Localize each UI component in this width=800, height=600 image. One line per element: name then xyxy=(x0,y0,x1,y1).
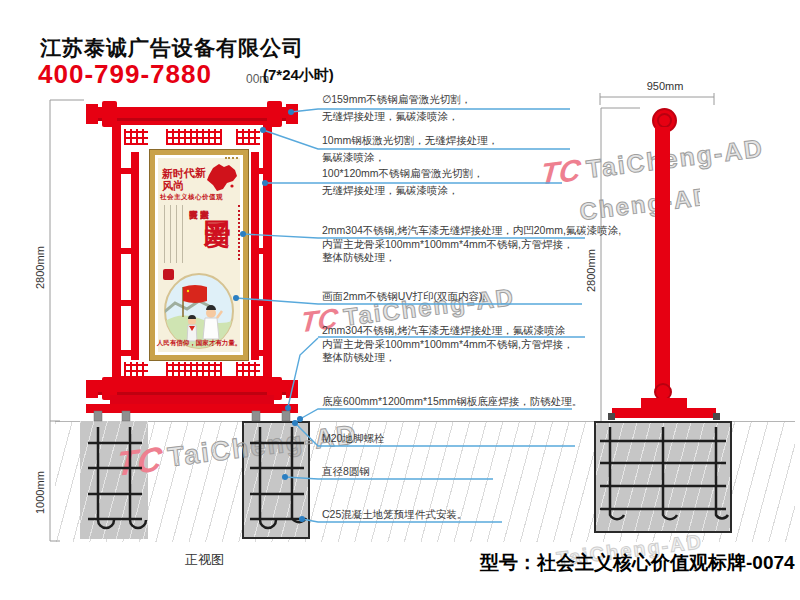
frame-rung xyxy=(253,300,263,306)
poster-bottom-slogan: 人民有信仰，国家才有力量。 xyxy=(155,339,243,348)
callout-line: 10mm钢板激光切割，无缝焊接处理， xyxy=(322,134,498,148)
callout-line: 氟碳漆喷涂， xyxy=(322,151,498,165)
callout-line: 画面2mm不锈钢UV打印(双面内容), xyxy=(322,290,485,304)
side-base-slab xyxy=(612,408,716,418)
poster-scroll-motif xyxy=(225,157,238,159)
side-foundation-pier xyxy=(594,421,732,533)
front-bottom-beam-nub-left xyxy=(86,380,98,398)
model-number: 型号：社会主义核心价值观标牌-0074 xyxy=(480,550,795,576)
front-top-beam-nub-right xyxy=(286,104,298,124)
callout-line: 无缝焊接处理，氟碳漆喷涂， xyxy=(322,110,471,124)
frame-rung xyxy=(121,350,131,356)
callout-concrete: C25混凝土地笼预埋件式安装。 xyxy=(322,508,467,522)
callout-line: 2mm304不锈钢,烤汽车漆无缝焊接处理，内凹20mm,氟碳漆喷涂, xyxy=(322,224,621,238)
frame-rung xyxy=(121,300,131,306)
company-name: 江苏泰诚广告设备有限公司 xyxy=(40,34,304,62)
frame-ornament xyxy=(166,129,222,145)
frame-ornament xyxy=(124,362,148,378)
poster-calligraphy: 新时代新风尚 xyxy=(162,166,209,192)
watermark-text: TaiCheng-AD xyxy=(578,188,700,229)
side-pole xyxy=(655,127,670,392)
callout-line: 2mm304不锈钢,烤汽车漆无缝焊接处理，氟碳漆喷涂 xyxy=(322,324,573,338)
callout-cabinet-spec-2: 2mm304不锈钢,烤汽车漆无缝焊接处理，氟碳漆喷涂 内置主龙骨采100mm*1… xyxy=(322,324,573,365)
callout-line: C25混凝土地笼预埋件式安装。 xyxy=(322,508,467,522)
taicheng-logo-icon: TC xyxy=(115,441,163,481)
frame-inner-mullion-right xyxy=(251,152,259,360)
frame-ornament xyxy=(236,129,260,145)
watermark: TC TaiCheng-AD xyxy=(539,132,765,189)
callout-line: 内置主龙骨采100mm*100mm*4mm不锈钢,方管焊接， xyxy=(322,238,621,252)
poster-panel: 新时代新风尚 社会主义核心价值观 国家兴亡 匹夫有责 爱国 xyxy=(150,150,248,360)
callout-line: 无缝焊接处理，氟碳漆喷涂， xyxy=(322,184,484,198)
callout-line: 内置主龙骨采100mm*100mm*4mm不锈钢,方管焊接， xyxy=(322,338,573,352)
side-width-dimension: 950mm xyxy=(630,80,700,92)
side-base-clamp xyxy=(713,413,720,420)
hotline-hours: (7*24小时) xyxy=(263,66,334,85)
hotline-number: 400-799-7880 xyxy=(38,59,212,90)
frame-rung xyxy=(253,248,263,254)
callout-line: 直径8圆钢 xyxy=(322,465,370,479)
front-top-beam-nub-left xyxy=(86,104,98,124)
callout-flat-tube: 100*120mm不锈钢扁管激光切割， 无缝焊接处理，氟碳漆喷涂， xyxy=(322,167,484,197)
front-foundation-dimension: 1000mm xyxy=(34,450,46,514)
watermark-text: TaiCheng-AD xyxy=(585,135,765,182)
callout-cabinet-spec: 2mm304不锈钢,烤汽车漆无缝焊接处理，内凹20mm,氟碳漆喷涂, 内置主龙骨… xyxy=(322,224,621,265)
front-base-slab xyxy=(86,404,298,413)
callout-line: 整体防锈处理， xyxy=(322,251,621,265)
china-map-icon xyxy=(205,161,239,197)
side-pole-cap-inner xyxy=(657,113,672,128)
callout-line: M20地脚螺栓 xyxy=(322,432,384,446)
frame-ornament xyxy=(166,362,222,378)
callout-line: 整体防锈处理， xyxy=(322,351,573,365)
frame-rung xyxy=(121,248,131,254)
frame-ornament xyxy=(236,362,260,378)
front-view-label: 正视图 xyxy=(185,551,224,569)
poster-illustration xyxy=(161,273,237,349)
callout-line: ∅159mm不锈钢扁管激光切割， xyxy=(322,93,471,107)
callout-line: 底座600mm*1200mm*15mm钢板底座焊接，防锈处理。 xyxy=(322,395,582,409)
front-base-step xyxy=(110,395,274,404)
callout-base-plate: 底座600mm*1200mm*15mm钢板底座焊接，防锈处理。 xyxy=(322,395,582,409)
front-height-dimension: 2800mm xyxy=(34,225,46,289)
front-bottom-beam xyxy=(98,380,286,395)
callout-line: 100*120mm不锈钢扁管激光切割， xyxy=(322,167,484,181)
side-base-clamp xyxy=(608,413,615,420)
taicheng-logo-icon: TC xyxy=(540,155,582,190)
frame-ornament xyxy=(124,129,148,145)
frame-rung xyxy=(253,350,263,356)
frame-rung xyxy=(121,168,131,174)
callout-anchor-bolt: M20地脚螺栓 xyxy=(322,432,384,446)
poster-side-caption xyxy=(238,205,240,260)
front-top-beam xyxy=(98,107,286,121)
front-bottom-beam-nub-right xyxy=(286,380,298,398)
callout-rebar: 直径8圆钢 xyxy=(322,465,370,479)
frame-rung xyxy=(253,168,263,174)
callout-steel-plate: 10mm钢板激光切割，无缝焊接处理， 氟碳漆喷涂， xyxy=(322,134,498,164)
poster-body-text-columns xyxy=(164,205,186,263)
side-base-step xyxy=(641,398,687,408)
frame-inner-mullion-left xyxy=(131,152,139,360)
callout-uv-print: 画面2mm不锈钢UV打印(双面内容), xyxy=(322,290,485,304)
drawing-canvas: 江苏泰诚广告设备有限公司 400-799-7880 00m (7*24小时) T… xyxy=(0,0,800,600)
callout-pipe-spec: ∅159mm不锈钢扁管激光切割， 无缝焊接处理，氟碳漆喷涂， xyxy=(322,93,471,123)
